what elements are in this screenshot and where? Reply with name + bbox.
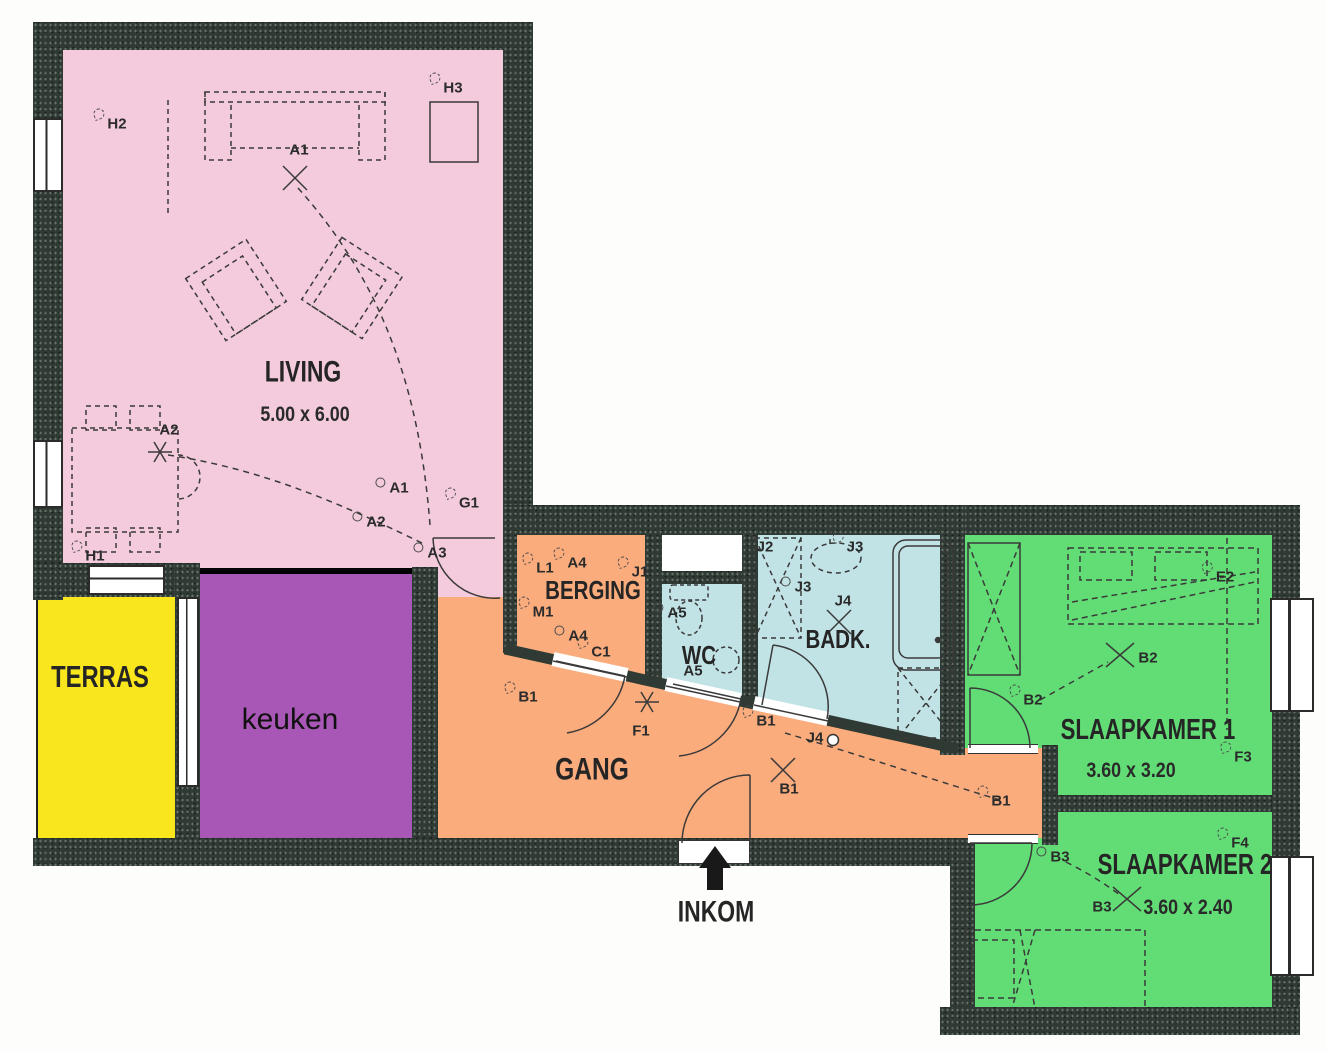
symbol-label-e2-27: E2: [1216, 569, 1234, 586]
symbol-label-f4-31: F4: [1231, 835, 1249, 852]
symbol-label-j3-25: J3: [795, 579, 812, 596]
symbol-label-f3-30: F3: [1234, 749, 1252, 766]
symbol-label-h1-4: H1: [85, 548, 104, 565]
symbols-layer: H2H3A1A2H1A1G1A2A3L1A4J1M1A4C1B1F1B1J4B1…: [0, 0, 1326, 1051]
symbol-label-a5-21: A5: [667, 605, 686, 622]
symbol-label-a3-8: A3: [427, 545, 446, 562]
symbol-label-b2-28: B2: [1138, 650, 1157, 667]
symbol-label-j2-23: J2: [757, 539, 774, 556]
symbol-label-a4-10: A4: [567, 555, 586, 572]
symbol-label-m1-12: M1: [533, 604, 554, 621]
symbol-label-a1-5: A1: [389, 480, 408, 497]
symbol-label-h2-0: H2: [107, 116, 126, 133]
symbol-label-h3-1: H3: [443, 80, 462, 97]
symbol-label-b3-33: B3: [1092, 899, 1111, 916]
symbol-label-a5-22: A5: [683, 663, 702, 680]
symbol-label-b1-15: B1: [518, 689, 537, 706]
symbol-label-b1-19: B1: [779, 781, 798, 798]
symbol-label-a1-2: A1: [289, 142, 308, 159]
symbol-label-b2-29: B2: [1023, 692, 1042, 709]
symbol-label-l1-9: L1: [536, 560, 554, 577]
symbol-label-j1-11: J1: [632, 564, 649, 581]
symbol-label-f1-16: F1: [632, 723, 650, 740]
symbol-label-a2-3: A2: [159, 422, 178, 439]
symbol-label-g1-6: G1: [459, 495, 479, 512]
symbol-label-j4-18: J4: [807, 730, 824, 747]
symbol-label-b1-20: B1: [991, 793, 1010, 810]
symbol-label-j4-26: J4: [835, 593, 852, 610]
symbol-label-b1-17: B1: [756, 713, 775, 730]
symbol-label-b3-32: B3: [1050, 849, 1069, 866]
symbol-label-j3-24: J3: [847, 539, 864, 556]
floorplan-canvas: LIVING 5.00 x 6.00 TERRAS keuken GANG BE…: [0, 0, 1326, 1051]
symbol-label-c1-14: C1: [591, 644, 610, 661]
symbol-label-a2-7: A2: [366, 514, 385, 531]
